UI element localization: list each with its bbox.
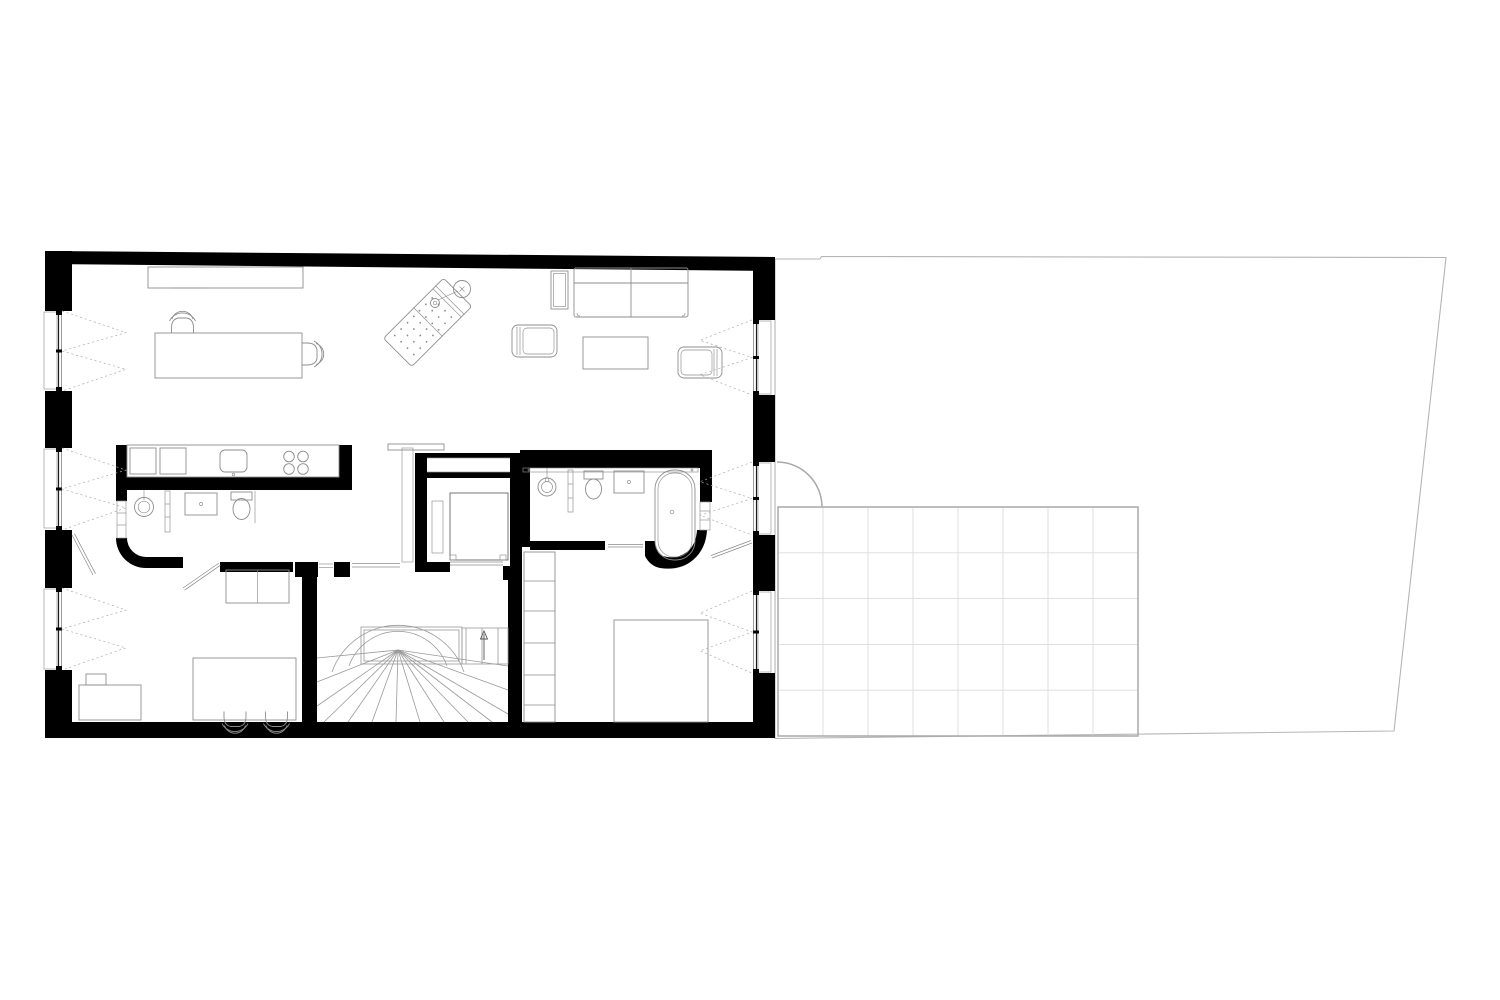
lobby-shelf [388,444,444,450]
bathroom-wall-top [520,450,700,468]
washing-machine [185,493,217,515]
bed-left [193,658,296,720]
living-room [512,268,722,378]
coffee-table [583,337,648,369]
sideboard [148,267,303,288]
desk-monitor [86,674,106,685]
side-table [551,271,568,309]
bathroom-wall-bottom [530,541,605,550]
corner-bottom-right [753,673,775,738]
corner-top-left [45,251,72,311]
right-pier-1 [753,395,775,462]
room-bottom-left [79,570,296,720]
window-left-1 [44,311,126,391]
closet-strip [524,552,555,722]
door-leaf-left-room [72,534,96,575]
corridor-stub [334,562,350,577]
interior-walls [116,445,712,722]
bathroom-slide-door [608,545,643,548]
staircase [317,625,508,722]
wc-wall-stub [146,557,183,568]
bathtub [655,470,695,560]
right-pier-2 [753,535,775,591]
armchair-left [512,325,557,357]
bathroom-curved-wall [645,530,707,569]
hall-wall [220,562,293,572]
floor-plan-drawing [0,0,1500,1000]
lobby-partition [402,448,413,562]
bottom-wall [45,722,775,738]
dining-chair [302,341,324,367]
door-leaf-hall [183,563,221,590]
elevator-counterweight [432,501,443,553]
rail-dot [691,469,693,471]
bathroom-radiator-niche [700,502,710,530]
desk [79,685,141,720]
bathroom-wall-right [700,450,712,502]
kitchen-wall-right-pier [339,445,352,477]
terrace-door-leaf [711,541,752,559]
terrace [777,462,1138,736]
walkline-outer [332,625,464,672]
wc-round-basin [135,490,154,517]
terrace-door-swing-arc [777,462,822,507]
plot-boundary [775,257,1446,739]
wc-room [135,490,256,532]
left-pier-2 [45,530,72,588]
window-right-1 [700,320,771,395]
left-windows [44,311,126,670]
bathroom-wall-left [520,450,530,547]
bath-toilet [584,471,603,499]
wc-radiator-niche [117,501,126,538]
kitchen-back-wall [116,477,352,490]
floor-plan-canvas [0,0,1500,1000]
wc-curved-wall [116,538,146,568]
window-left-3 [44,588,126,670]
dining-table [155,333,302,378]
elevator-niche [423,458,517,472]
bedroom-bottom-right [524,552,708,722]
stair-wall-top-left [295,562,318,577]
wc-toilet [231,492,252,520]
shower-partition [165,491,170,532]
elevator-cab [450,493,508,560]
corner-top-right [753,257,775,320]
stair-wall-left [302,575,317,722]
bath-vanity-cabinet [614,471,644,493]
kitchen-counter [127,445,339,477]
bed-right [614,620,708,722]
kitchen-wall-left-stub [116,445,127,501]
dining-chair [170,311,196,333]
wardrobe-cabinet [226,570,289,603]
bath-shower-partition [568,470,573,512]
stair-wall-right [508,570,522,722]
terrace-tile-grid [778,507,1138,736]
stair-up-arrow [481,631,488,660]
armchair-right [678,347,722,378]
elevator-wall-left [415,453,427,572]
elevator-stub-left [427,562,450,572]
chaise-lounge [383,278,471,366]
elevator-stub-right [503,566,522,580]
left-pier-1 [45,391,72,448]
sofa [574,268,688,317]
elevator [432,493,508,565]
window-right-3 [700,591,771,673]
window-left-2 [44,448,126,530]
